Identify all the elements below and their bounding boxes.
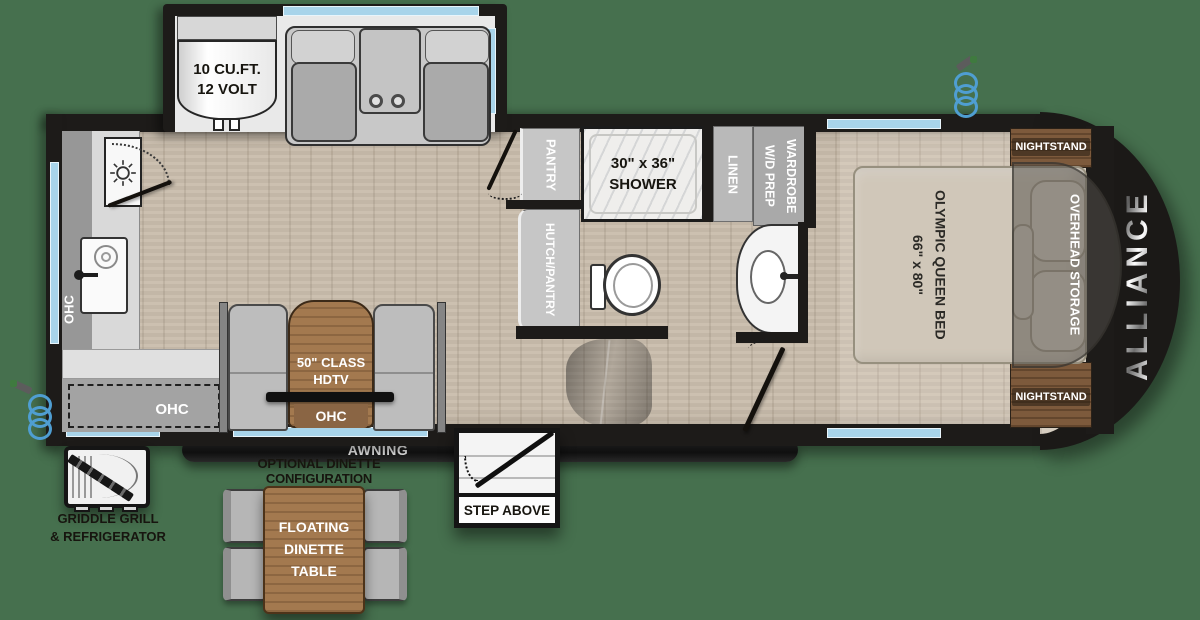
grill-label: GRIDDLE GRILL & REFRIGERATOR [28, 510, 188, 546]
nightstand-bottom-label: NIGHTSTAND [1012, 388, 1090, 406]
floating-dinette-table: FLOATING DINETTE TABLE [263, 486, 365, 614]
grill-label-line1: GRIDDLE GRILL [57, 510, 158, 528]
theater-seat-left-cushion [291, 62, 357, 142]
fridge-label-line2: 12 VOLT [197, 80, 257, 100]
shower: 30" x 36" SHOWER [581, 126, 705, 222]
hutch-pantry: HUTCH/PANTRY [518, 209, 580, 330]
step-label: STEP ABOVE [459, 493, 555, 523]
bath-wall-bottom [516, 326, 668, 339]
pantry-closet: PANTRY [520, 128, 580, 202]
nightstand-top-label: NIGHTSTAND [1012, 138, 1090, 156]
rv-floorplan: AWNING ALLIANCE OHC OHC [0, 0, 1200, 620]
water-hose-icon-top [944, 56, 994, 116]
overhead-storage-label: OVERHEAD STORAGE [1062, 170, 1088, 360]
fridge-cabinet [177, 16, 277, 40]
kitchen-counter-bottom [62, 349, 228, 379]
bed-label: OLYMPIC QUEEN BED 66" x 80" [898, 170, 960, 360]
tv-rail-right [437, 302, 446, 433]
floating-dinette-label: FLOATING DINETTE TABLE [265, 488, 363, 612]
water-hose-icon-bottom [10, 378, 60, 438]
griddle-grill [64, 446, 150, 508]
bench-left-seam [230, 372, 286, 374]
window-bottom-bedroom [827, 428, 941, 438]
fridge-foot-left [213, 118, 224, 131]
grill-label-line2: & REFRIGERATOR [50, 528, 166, 546]
refrigerator: 10 CU.FT. 12 VOLT [177, 40, 277, 120]
theater-seat-right-back [425, 30, 489, 64]
vanity-faucet-dot [780, 272, 788, 280]
shower-wall-right [703, 126, 713, 222]
kitchen-ohc-side-label: OHC [58, 286, 80, 334]
fridge-label-line1: 10 CU.FT. [193, 60, 261, 80]
shower-word: SHOWER [609, 174, 677, 195]
optional-dinette-title: OPTIONAL DINETTE CONFIGURATION [206, 463, 432, 479]
dinette-chair-right-top [363, 489, 407, 543]
toilet-seat [613, 263, 653, 308]
slide-window-top [283, 6, 479, 16]
shower-label: 30" x 36" SHOWER [584, 129, 702, 219]
fridge-label: 10 CU.FT. 12 VOLT [179, 42, 275, 118]
fridge-foot-right [229, 118, 240, 131]
faucet-bar [82, 273, 98, 277]
tv-rail-left [219, 302, 228, 433]
pantry-door-arc [488, 186, 522, 200]
tv-screen [266, 392, 394, 402]
bench-right-seam [375, 372, 433, 374]
window-top-bedroom [827, 119, 941, 129]
tv-label-line2: HDTV [313, 372, 348, 389]
pantry-wall-bottom [506, 200, 582, 209]
tv-ohc-label: OHC [294, 404, 368, 428]
theater-seat-left-back [291, 30, 355, 64]
cupholder-right [391, 94, 405, 108]
linen-closet: LINEN [713, 126, 753, 222]
bedroom-partition-top [804, 124, 816, 228]
cupholder-left [369, 94, 383, 108]
sink-drain-center [101, 252, 111, 262]
tv-label-line1: 50" CLASS [297, 355, 365, 372]
dinette-chair-left-bottom [223, 547, 267, 601]
kitchen-ohc-bottom-label: OHC [132, 398, 212, 420]
hutch-pantry-label: HUTCH/PANTRY [521, 210, 579, 329]
tv-label: 50" CLASS HDTV [288, 352, 374, 392]
wardrobe-wd-prep: WARDROBE W/D PREP [753, 126, 806, 226]
dinette-chair-right-bottom [363, 547, 407, 601]
bench-left [228, 304, 288, 431]
bench-right [373, 304, 435, 431]
shower-size: 30" x 36" [611, 153, 675, 174]
vanity-wall-right [798, 222, 808, 340]
dinette-chair-left-top [223, 489, 267, 543]
pantry-label: PANTRY [523, 129, 579, 201]
theater-seat-right-cushion [423, 62, 489, 142]
